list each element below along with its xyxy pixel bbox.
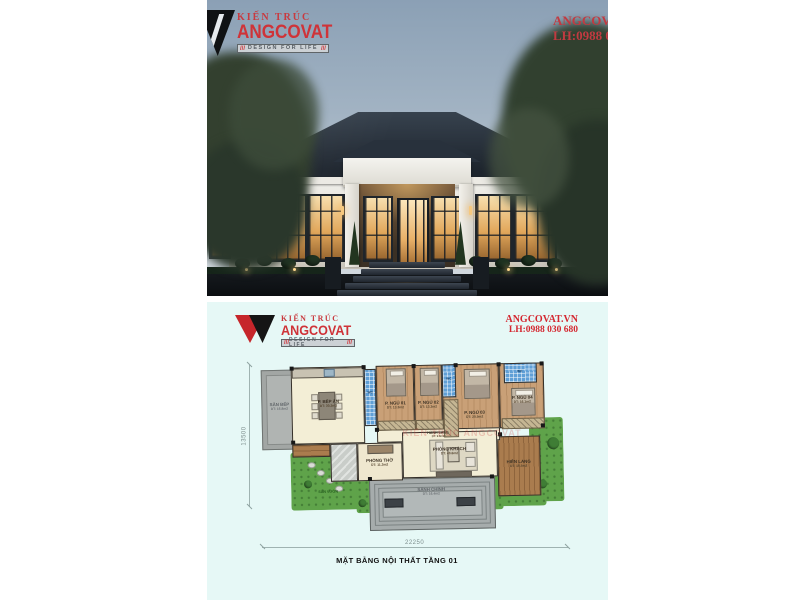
window xyxy=(307,194,345,262)
column xyxy=(541,423,545,427)
entry-step xyxy=(345,283,469,289)
tree xyxy=(489,108,569,208)
column xyxy=(540,361,544,365)
label-bed4: P. NGỦ 04DT: 16.1m2 xyxy=(512,395,533,405)
wall-sconce-light xyxy=(341,206,344,215)
armchair xyxy=(466,457,476,467)
dining-chair xyxy=(312,412,319,419)
portico-entablature xyxy=(343,158,471,187)
label-worship: PHÒNG THỜDT: 11.3m2 xyxy=(366,458,393,468)
poster-page: KIẾN TRÚC ANGCOVAT /// DESIGN FOR LIFE /… xyxy=(0,0,800,600)
label-porch: SẢNH CHÍNHDT: 16.4m2 xyxy=(417,487,445,497)
tree xyxy=(229,60,319,170)
bed xyxy=(420,368,440,396)
label-terrace: SÂN BẾPDT: 16.8m2 xyxy=(270,402,290,412)
column xyxy=(497,362,501,366)
logo-slashes: /// xyxy=(240,46,245,52)
angcovat-logo: KIẾN TRÚC ANGCOVAT /// DESIGN FOR LIFE /… xyxy=(207,10,339,62)
column xyxy=(290,367,294,371)
bed xyxy=(386,368,407,396)
entry-step xyxy=(337,290,477,296)
contact-phone: LH:0988 030 680 xyxy=(553,28,608,43)
small-deck xyxy=(292,444,330,458)
logo-slashes: /// xyxy=(321,46,326,52)
logo-triangle-icon xyxy=(207,10,235,56)
plan-watermark: KIẾN TRÚC ANGCOVAT xyxy=(402,428,521,438)
entrance-door xyxy=(397,198,429,268)
altar-table xyxy=(367,445,393,455)
entry-step xyxy=(353,276,461,282)
photo-contact-text: ANGCOVAT.VN LH:0988 030 680 xyxy=(553,13,608,43)
blanket xyxy=(421,383,438,395)
label-living: PHÒNG KHÁCHDT: 40.6m2 xyxy=(433,446,466,456)
label-bed3: P. NGỦ 03DT: 20.5m2 xyxy=(464,410,485,420)
door-mat xyxy=(384,498,403,507)
logo-tagline-text: DESIGN FOR LIFE xyxy=(248,46,318,52)
window xyxy=(475,194,513,262)
dimension-height-value: 13500 xyxy=(242,426,248,445)
step-planter xyxy=(473,257,489,289)
logo-tagline-bar: /// DESIGN FOR LIFE /// xyxy=(237,44,329,53)
entry-step xyxy=(361,269,453,275)
house-exterior-photo: KIẾN TRÚC ANGCOVAT /// DESIGN FOR LIFE /… xyxy=(207,0,608,296)
blanket xyxy=(465,385,489,398)
pillow xyxy=(468,371,487,377)
shrub xyxy=(521,255,536,266)
pillow xyxy=(389,370,404,376)
label-bed1: P. NGỦ 01DT: 13.3m2 xyxy=(385,400,406,410)
garden-light xyxy=(555,268,558,271)
column xyxy=(412,364,416,368)
dimension-line-width xyxy=(262,547,568,548)
window xyxy=(363,196,393,262)
column xyxy=(454,363,458,367)
column xyxy=(291,441,295,445)
floor-plan-panel: KIẾN TRÚC ANGCOVAT /// DESIGN FOR LIFE /… xyxy=(207,302,608,600)
contact-site: ANGCOVAT.VN xyxy=(553,13,608,28)
logo-name-text: ANGCOVAT xyxy=(237,23,332,42)
entry-step xyxy=(369,262,445,268)
armchair xyxy=(465,442,475,452)
dimension-width-value: 22250 xyxy=(405,540,424,546)
column xyxy=(375,428,379,432)
door-mat xyxy=(456,497,475,506)
step-planter xyxy=(325,257,341,289)
label-deck: HIÊN LANGDT: 10.5m2 xyxy=(506,459,530,469)
dimension-line-height xyxy=(249,365,250,507)
label-garden: SÂN VƯỜN xyxy=(318,489,338,494)
label-wc3: WC xyxy=(517,370,522,374)
shrub xyxy=(305,255,320,266)
label-wc2: WC xyxy=(446,377,451,381)
garden-light xyxy=(293,268,296,271)
column xyxy=(490,474,494,478)
room-wc1 xyxy=(364,369,377,426)
window xyxy=(431,196,461,262)
plan-title: MẶT BẰNG NỘI THẤT TẦNG 01 xyxy=(336,556,458,565)
blanket xyxy=(387,384,405,396)
garden-light xyxy=(507,268,510,271)
column xyxy=(368,477,372,481)
label-bed2: P. NGỦ 02DT: 13.3m2 xyxy=(418,400,439,410)
bed xyxy=(464,368,491,399)
kitchen-sink xyxy=(324,369,335,377)
room-bath xyxy=(330,443,358,482)
dining-chair xyxy=(336,412,343,419)
label-kitchen: P. BẾP ĂNDT: 30.2m2 xyxy=(318,399,340,409)
tv-cabinet xyxy=(436,471,472,478)
logo-slash-icon xyxy=(207,14,224,52)
label-wc1: WC xyxy=(368,391,373,395)
pillow xyxy=(423,370,437,376)
wall-sconce-light xyxy=(469,206,472,215)
column xyxy=(362,365,366,369)
